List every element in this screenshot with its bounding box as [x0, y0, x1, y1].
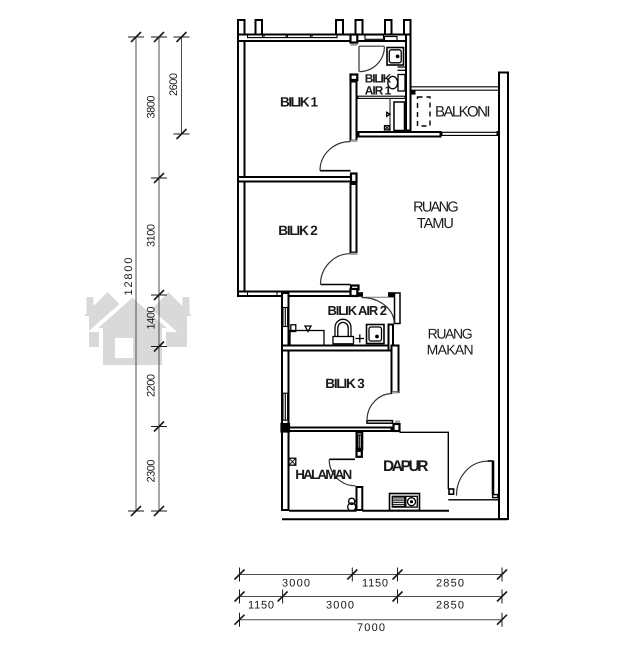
svg-text:3000: 3000 [326, 600, 354, 612]
svg-text:AIR 1: AIR 1 [365, 83, 392, 97]
svg-text:2600: 2600 [168, 73, 180, 96]
svg-text:2850: 2850 [436, 578, 464, 590]
svg-text:1150: 1150 [248, 600, 274, 612]
svg-text:2300: 2300 [146, 460, 158, 483]
svg-text:BILIK 3: BILIK 3 [325, 376, 365, 391]
svg-text:BILIK 1: BILIK 1 [280, 95, 318, 110]
svg-text:RUANG: RUANG [428, 326, 473, 342]
svg-text:7000: 7000 [357, 622, 385, 634]
svg-text:3800: 3800 [146, 96, 158, 119]
svg-text:BILIK AIR 2: BILIK AIR 2 [327, 303, 387, 318]
svg-text:TAMU: TAMU [417, 216, 454, 232]
svg-text:BALKONI: BALKONI [435, 103, 491, 120]
svg-text:2850: 2850 [436, 600, 464, 612]
svg-text:MAKAN: MAKAN [427, 341, 474, 357]
svg-text:DAPUR: DAPUR [383, 458, 429, 475]
svg-text:BILIK 2: BILIK 2 [278, 223, 318, 238]
svg-text:RUANG: RUANG [413, 200, 459, 216]
svg-text:1150: 1150 [362, 578, 388, 590]
svg-text:3100: 3100 [146, 224, 158, 247]
svg-text:2200: 2200 [146, 374, 158, 397]
svg-text:HALAMAN: HALAMAN [295, 467, 352, 482]
svg-text:3000: 3000 [282, 578, 310, 590]
svg-text:12800: 12800 [123, 258, 135, 296]
svg-text:1400: 1400 [146, 307, 158, 330]
